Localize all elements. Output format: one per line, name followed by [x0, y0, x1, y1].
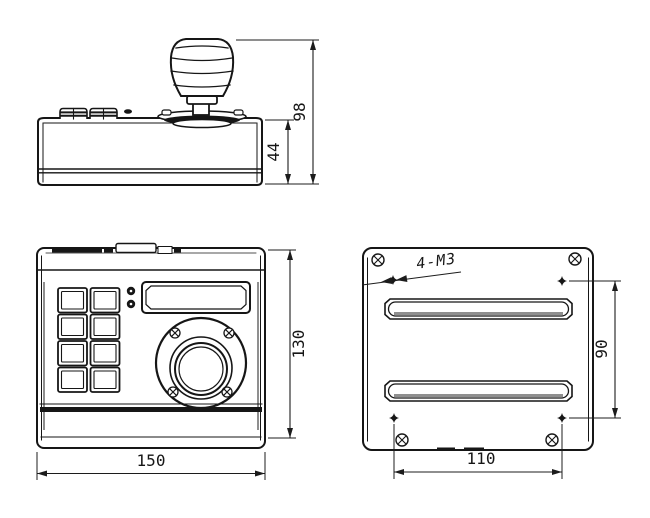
- corner-screw: [546, 434, 558, 446]
- plate-outline: [363, 248, 593, 450]
- dim-44-label: 44: [264, 142, 283, 161]
- front-display-window: [142, 282, 250, 313]
- keypad-key: [58, 315, 87, 340]
- side-led-dot: [124, 109, 132, 114]
- joystick-screw: [224, 328, 234, 338]
- side-keypad-block-left: [60, 109, 87, 120]
- dim-130: 130: [268, 250, 308, 438]
- dim-150-label: 150: [137, 451, 166, 470]
- dim-90-label: 90: [592, 339, 611, 358]
- keypad-key: [91, 368, 120, 393]
- bottom-plate-view: 4-M3 90 110: [362, 248, 621, 479]
- corner-screw: [569, 253, 581, 265]
- keypad-key: [58, 288, 87, 313]
- technical-drawing-canvas: 44 98: [0, 0, 650, 518]
- plate-foot-mark: [437, 448, 455, 452]
- side-joystick-flange: [187, 96, 217, 104]
- side-body-outline: [38, 118, 262, 185]
- keypad-key: [91, 341, 120, 366]
- dim-130-label: 130: [289, 330, 308, 359]
- joystick-screw: [170, 328, 180, 338]
- dimension-drawing: 44 98: [0, 0, 650, 518]
- joystick-knob-top: [175, 343, 227, 395]
- front-rear-tab: [116, 244, 156, 253]
- keypad-key: [91, 288, 120, 313]
- vent-slot-bottom: [385, 381, 572, 401]
- dim-110-label: 110: [467, 449, 496, 468]
- dim-98-label: 98: [290, 102, 309, 121]
- keypad-key: [58, 368, 87, 393]
- front-groove-band: [40, 407, 262, 412]
- side-view: 44 98: [38, 39, 319, 185]
- dim-150: 150: [37, 451, 265, 480]
- side-keypad-block-right: [90, 109, 117, 120]
- corner-screw: [372, 254, 384, 266]
- corner-screw: [396, 434, 408, 446]
- keypad-key: [91, 315, 120, 340]
- side-joystick-knob: [171, 39, 233, 96]
- joystick-screw: [168, 387, 178, 397]
- vent-slot-top: [385, 299, 572, 319]
- keypad-key: [58, 341, 87, 366]
- front-joystick-base: [156, 318, 246, 408]
- front-view: 130 150: [37, 244, 308, 481]
